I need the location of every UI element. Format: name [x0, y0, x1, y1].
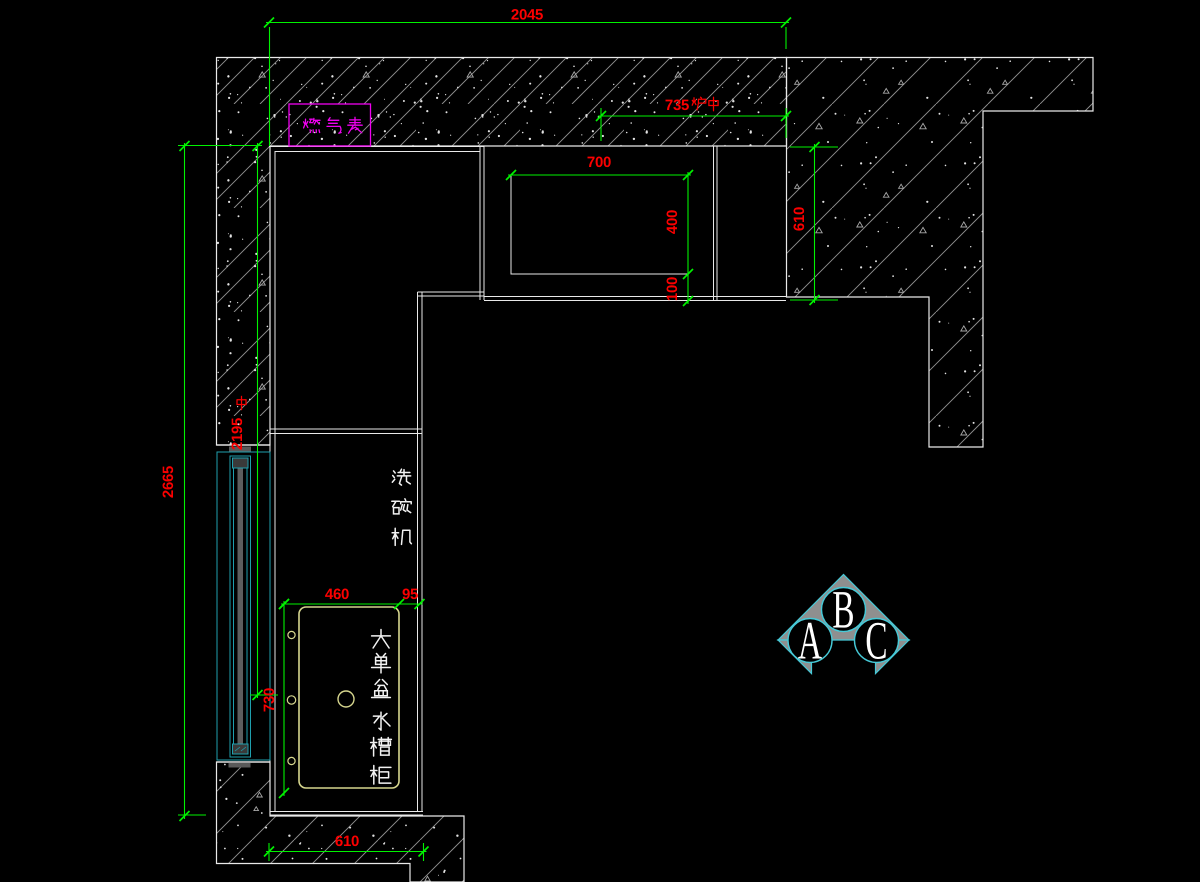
svg-text:610: 610	[335, 833, 359, 850]
svg-text:100: 100	[664, 277, 681, 301]
svg-text:2045: 2045	[511, 7, 543, 24]
svg-text:700: 700	[587, 154, 611, 171]
svg-text:95: 95	[402, 586, 418, 603]
svg-text:460: 460	[325, 586, 349, 603]
svg-text:2195: 2195	[229, 418, 246, 450]
svg-text:2665: 2665	[160, 466, 177, 498]
svg-text:610: 610	[791, 207, 808, 231]
svg-text:730: 730	[261, 688, 278, 712]
svg-text:735: 735	[665, 97, 689, 114]
svg-text:400: 400	[664, 210, 681, 234]
